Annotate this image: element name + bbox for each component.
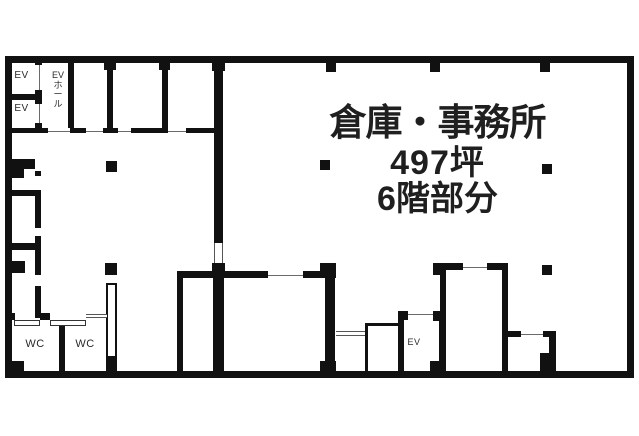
door-opening [35,65,42,90]
wall-segment [365,323,368,372]
room-label-wc-b: WC [70,338,100,350]
wall-segment [365,323,400,326]
wall-segment [212,62,225,71]
wall-segment [214,71,223,243]
wall-segment [12,313,15,320]
wall-segment [398,311,408,320]
pillar [540,63,550,72]
room-label-elevator-bottom: EV [401,337,427,347]
pillar [105,263,117,275]
elevator-hall-line-4: ル [53,100,62,110]
wall-segment [162,70,168,128]
pillar [326,63,336,72]
wall-segment [508,331,521,337]
wall-segment [35,236,41,275]
door-opening [35,104,42,123]
door-opening [118,128,131,133]
pillar [106,161,117,172]
wall-segment [186,128,214,133]
door-opening [48,128,70,133]
room-label-elevator-top-a: EV [8,70,35,81]
wall-segment [131,128,168,133]
wall-segment [8,128,48,133]
wall-segment [627,56,634,378]
wall-segment [107,70,113,128]
door-opening [463,263,487,270]
wall-segment [12,190,35,196]
wall-segment [540,353,556,371]
wall-segment [106,358,117,372]
wall-segment [59,326,65,372]
wall-segment [12,261,25,273]
door-opening [521,331,543,337]
wall-segment [35,90,42,104]
door-opening [336,331,365,336]
wall-segment [104,62,116,70]
wall-segment [440,263,446,372]
title-line-area: 497坪 [250,146,625,181]
wall-segment [35,190,41,228]
floor-plan-canvas: EV EV EV ホ ー ル WC WC EV 倉庫・事務所 497坪 6階部分 [0,0,639,436]
wall-segment [320,361,336,378]
wall-segment [213,271,224,378]
pillar [430,63,440,72]
partition-outline [106,283,117,358]
wall-segment [159,62,170,70]
wall-segment [5,56,634,63]
wall-segment [183,271,268,278]
title-line-usage: 倉庫・事務所 [250,100,625,146]
wall-segment [35,171,41,176]
wall-segment [320,263,336,278]
title-line-floor: 6階部分 [250,181,625,217]
wall-segment [12,243,35,250]
wall-segment [325,278,335,361]
door-opening [214,243,223,263]
door-opening [50,320,86,326]
door-opening [168,128,186,133]
wall-segment [5,361,24,378]
door-opening [268,271,303,278]
room-label-elevator-hall: EV ホ ー ル [50,71,66,109]
wall-segment [12,169,24,178]
door-opening [86,128,103,133]
door-opening [14,320,40,326]
wall-segment [40,313,50,320]
wall-segment [502,263,508,371]
wall-segment [446,263,463,270]
wall-segment [177,271,183,378]
wall-segment [68,62,74,128]
floor-plan [0,0,639,436]
wall-segment [8,94,35,100]
pillar [542,265,552,275]
wall-segment [103,128,118,133]
wall-segment [12,159,35,169]
door-opening [408,311,433,317]
door-opening [86,314,107,318]
room-label-wc-a: WC [20,338,50,350]
wall-segment [70,128,86,133]
room-label-elevator-top-b: EV [8,103,35,114]
title-block: 倉庫・事務所 497坪 6階部分 [250,100,625,217]
